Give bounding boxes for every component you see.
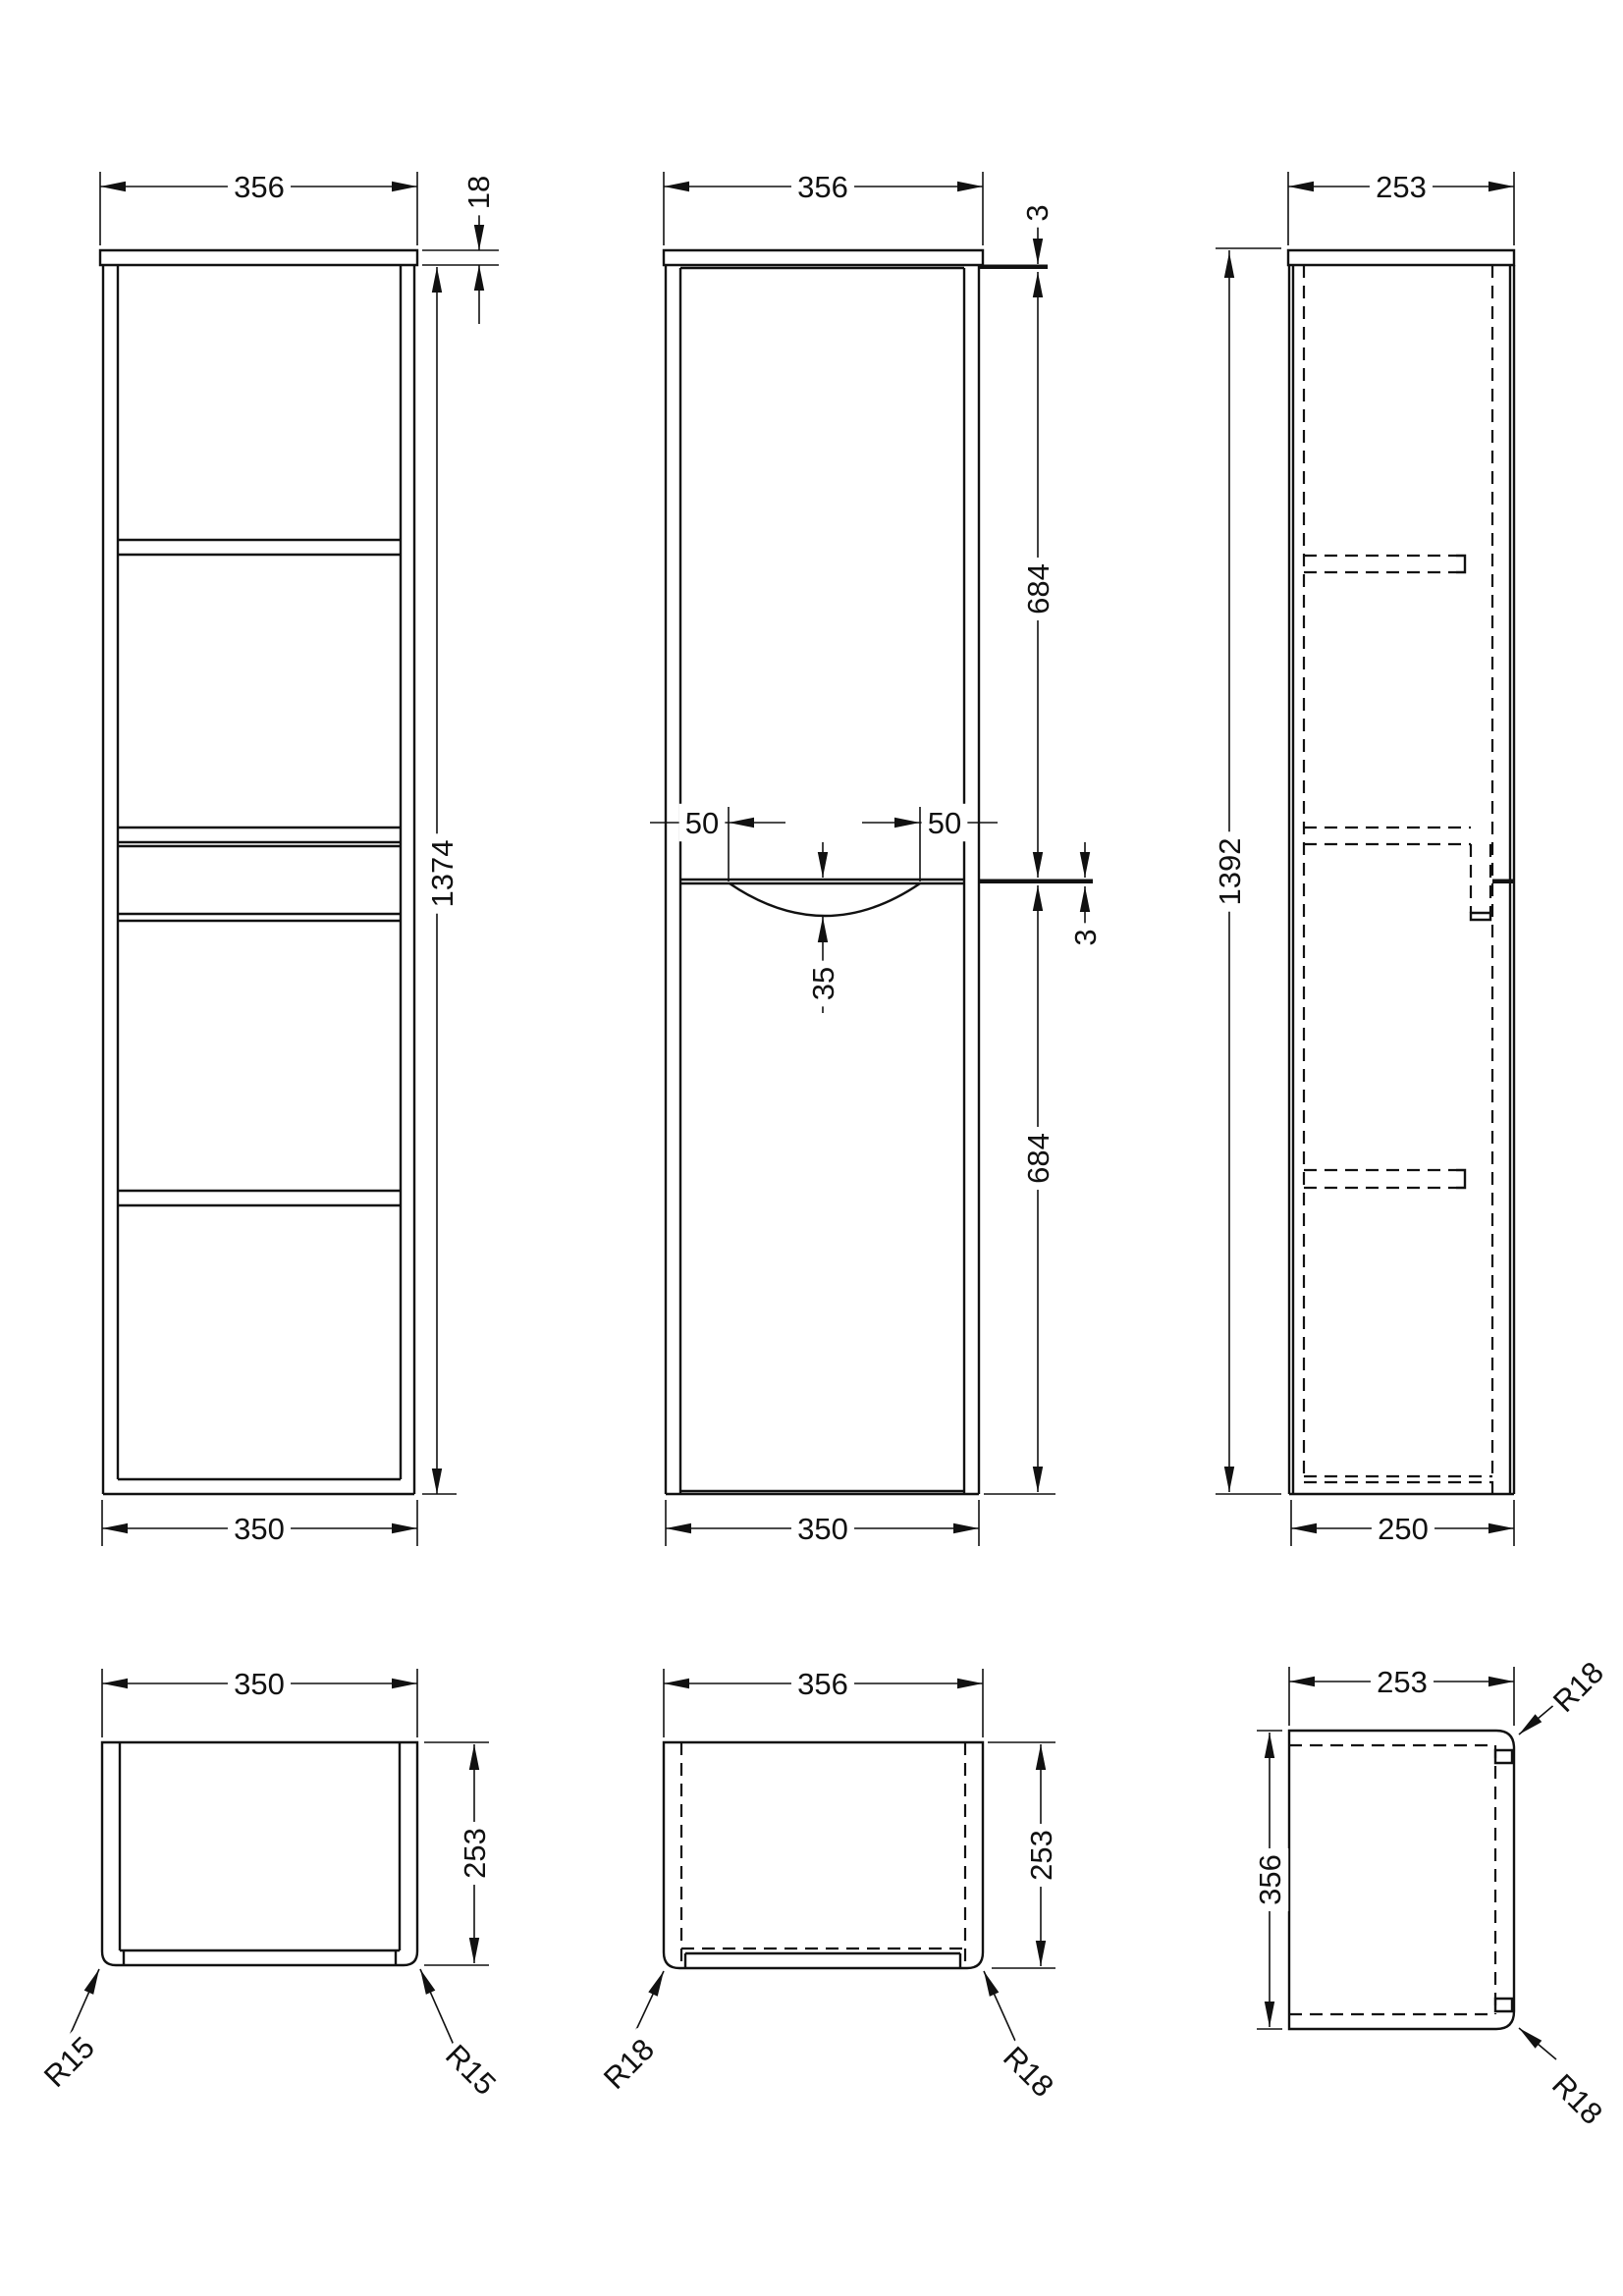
dimension-text: R15 (439, 2038, 503, 2102)
arrowhead (1036, 1744, 1046, 1770)
arrowhead (469, 1744, 479, 1770)
arrowhead (420, 1969, 435, 1995)
dim-label-group: 356 (228, 168, 291, 205)
arrowhead (664, 1679, 689, 1688)
dimension-text: 356 (1253, 1854, 1287, 1905)
dim-label-group: 684 (1019, 558, 1056, 620)
dimension-text: 50 (685, 806, 719, 840)
dim-label-group: R18 (994, 2036, 1064, 2107)
outline-path (664, 1742, 983, 1968)
dim-label-group: R18 (1542, 2063, 1613, 2134)
arrowhead (664, 182, 689, 191)
dim-label-group: 3 (1018, 198, 1055, 227)
dimension-text: 35 (806, 967, 840, 1000)
view-front-elevation-open: 356181374350 (100, 168, 499, 1547)
dimension-text: R18 (1545, 2067, 1609, 2131)
dim-label-group: 35 (804, 961, 841, 1007)
outline-path (1456, 556, 1465, 572)
dim-label-group: 356 (791, 1665, 854, 1702)
dimension-text: 1374 (425, 840, 460, 908)
dim-label-group: 1374 (423, 833, 460, 913)
view-side-elevation: 2531392250 (1211, 168, 1514, 1547)
dim-label-group: 350 (791, 1510, 854, 1547)
arrowhead (1265, 1733, 1274, 1758)
dimension-text: 3 (1020, 204, 1055, 221)
cabinet-technical-drawing: 3561813743503563684505035368435025313922… (0, 0, 1623, 2296)
arrowhead (818, 917, 828, 942)
arrowhead (1036, 1941, 1046, 1966)
dim-label-group: 253 (1371, 1663, 1434, 1700)
view-plan-side: 253356R18R18 (1251, 1651, 1613, 2134)
dim-label-group: 18 (460, 170, 497, 216)
outline-path (1471, 913, 1490, 920)
dim-label-group: 3 (1066, 923, 1104, 951)
outline-path (664, 250, 983, 265)
arrowhead (1265, 2002, 1274, 2027)
dim-label-group: 50 (922, 804, 968, 841)
dim-label-group: 253 (1022, 1824, 1059, 1887)
dimension-text: 3 (1068, 929, 1103, 945)
arrowhead (432, 1468, 442, 1494)
outline-path (1456, 1170, 1465, 1188)
dim-label-group: R18 (593, 2028, 664, 2099)
dim-label-group: 356 (791, 168, 854, 205)
outline-path (102, 1742, 417, 1965)
dim-label-group: 253 (456, 1822, 493, 1885)
view-plan-open-unit: 350253R15R15 (33, 1665, 507, 2105)
dimension-text: R18 (1546, 1655, 1610, 1719)
arrowhead (1033, 1467, 1043, 1492)
arrowhead (953, 1523, 979, 1533)
dim-label-group: 350 (228, 1665, 291, 1702)
arrowhead (1033, 885, 1043, 911)
dim-label-group: R15 (436, 2034, 507, 2105)
arrowhead (1488, 182, 1514, 191)
arrowhead (648, 1971, 664, 1997)
arrowhead (474, 225, 484, 250)
view-plan-door-unit: 356253R18R18 (593, 1665, 1064, 2107)
dimension-text: 350 (234, 1667, 285, 1701)
arrowhead (1291, 1523, 1317, 1533)
dim-label-group: 253 (1370, 168, 1433, 205)
dimension-text: 356 (234, 170, 285, 204)
dimension-text: 250 (1378, 1512, 1429, 1546)
arrowhead (984, 1971, 999, 1997)
arrowhead (1488, 1523, 1514, 1533)
arrowhead (729, 818, 754, 828)
dim-label-group: 250 (1372, 1510, 1434, 1547)
arrowhead (957, 182, 983, 191)
gap-bar (979, 265, 1048, 270)
dimension-text: 253 (1024, 1830, 1058, 1881)
arrowhead (102, 1523, 128, 1533)
arrowhead (1224, 252, 1234, 278)
arrowhead (432, 267, 442, 293)
arrowhead (469, 1938, 479, 1963)
dimension-text: 684 (1021, 563, 1055, 614)
arrowhead (1080, 886, 1090, 912)
arrowhead (894, 818, 920, 828)
arrowhead (1033, 239, 1043, 264)
arrowhead (392, 182, 417, 191)
arrowhead (1488, 1677, 1514, 1686)
gap-bar (1492, 880, 1514, 884)
dimension-text: 350 (234, 1512, 285, 1546)
dimension-text: 684 (1021, 1133, 1055, 1184)
dimension-text: 18 (461, 176, 496, 209)
arrowhead (1033, 852, 1043, 878)
dim-label-group: 350 (228, 1510, 291, 1547)
arrowhead (1033, 272, 1043, 297)
dimension-text: 356 (797, 170, 848, 204)
dim-label-group: 50 (679, 804, 726, 841)
view-front-elevation-doors: 35636845050353684350 (650, 168, 1104, 1547)
dimension-text: 253 (1377, 1665, 1428, 1699)
dim-label-group: 356 (1251, 1848, 1288, 1911)
outline-path (1288, 250, 1514, 265)
outline-path (1289, 1731, 1514, 2029)
dimension-text: 356 (797, 1667, 848, 1701)
dim-label-group: 1392 (1211, 831, 1248, 911)
outline-path (1495, 1750, 1512, 1763)
arrowhead (666, 1523, 691, 1533)
arrowhead (1224, 1467, 1234, 1492)
dimension-text: R15 (37, 2030, 101, 2094)
dimension-text: 50 (928, 806, 961, 840)
arrowhead (392, 1679, 417, 1688)
dimension-text: R18 (997, 2040, 1060, 2104)
outline-path (730, 883, 920, 916)
arrowhead (957, 1679, 983, 1688)
outline-path (1495, 1999, 1512, 2011)
arrowhead (1289, 1677, 1315, 1686)
arrowhead (84, 1969, 99, 1995)
dimension-text: R18 (597, 2032, 661, 2096)
dimension-text: 253 (458, 1828, 492, 1879)
arrowhead (1080, 852, 1090, 878)
arrowhead (818, 852, 828, 878)
arrowhead (1288, 182, 1314, 191)
arrowhead (100, 182, 126, 191)
gap-bar (979, 880, 1093, 884)
outline-path (100, 250, 417, 265)
drawing-page: 3561813743503563684505035368435025313922… (0, 0, 1623, 2296)
arrowhead (392, 1523, 417, 1533)
arrowhead (474, 265, 484, 291)
dimension-text: 253 (1376, 170, 1427, 204)
dim-label-group: R18 (1542, 1651, 1613, 1722)
dim-label-group: R15 (33, 2026, 104, 2097)
dimension-text: 1392 (1213, 838, 1247, 906)
dimension-text: 350 (797, 1512, 848, 1546)
arrowhead (102, 1679, 128, 1688)
dim-label-group: 684 (1019, 1127, 1056, 1190)
